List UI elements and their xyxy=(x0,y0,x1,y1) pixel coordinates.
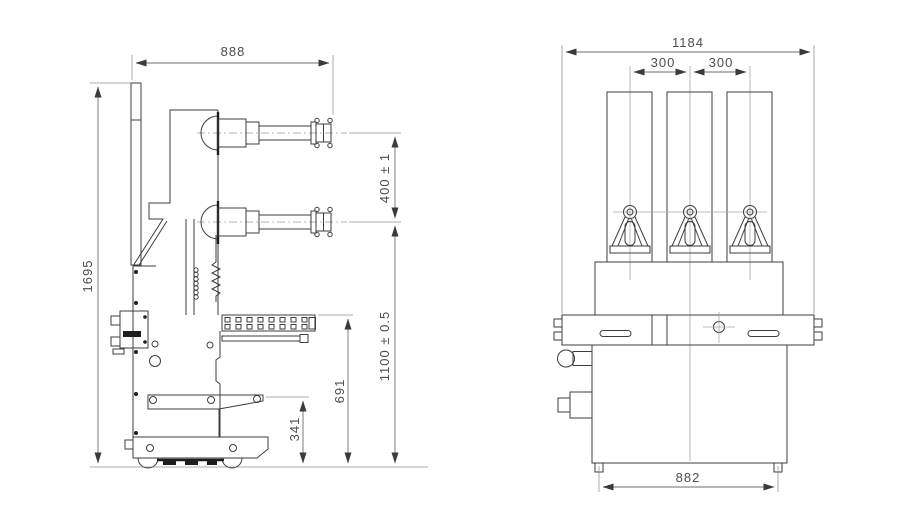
lower-guide-bar xyxy=(222,336,300,341)
wheel-left xyxy=(138,458,158,468)
cross-rail xyxy=(554,312,822,345)
cabinet xyxy=(558,345,788,472)
mechanism-knob-upper xyxy=(111,316,120,325)
pole-column-right xyxy=(727,92,772,262)
dim-label-pole-spacing-left: 300 xyxy=(651,55,676,70)
dim-overall-width-front: 1184 xyxy=(562,35,814,314)
dim-terminal-spacing: 400 ± 1 xyxy=(349,133,401,222)
lower-bushing xyxy=(197,201,347,244)
base-carriage xyxy=(125,437,268,468)
side-block xyxy=(570,392,592,418)
breaker-body xyxy=(133,110,220,437)
mechanism-knob-lower xyxy=(111,337,120,346)
hole-large xyxy=(150,356,161,367)
pole-column-middle xyxy=(667,92,712,262)
dim-bracket-height: 341 xyxy=(266,397,309,463)
mounting-bracket xyxy=(148,395,263,437)
bolt-dots xyxy=(134,270,138,435)
rail-slot-right xyxy=(748,331,779,337)
mechanism-box xyxy=(111,311,148,354)
dim-label-overall-width-side: 888 xyxy=(221,44,246,59)
dim-label-lower-terminal-height: 1100 ± 0.5 xyxy=(377,311,392,381)
engineering-drawing: 1695 888 400 ± 1 1100 ± 0.5 691 xyxy=(0,0,900,507)
dim-lower-terminal-height: 1100 ± 0.5 xyxy=(377,226,395,463)
dim-label-bracket-height: 341 xyxy=(287,417,302,442)
wheel-right xyxy=(222,458,242,468)
hole-small-right xyxy=(207,342,213,348)
dim-overall-width-side: 888 xyxy=(132,44,333,115)
pole-base-block xyxy=(595,262,783,315)
side-view: 1695 888 400 ± 1 1100 ± 0.5 691 xyxy=(80,44,428,468)
dim-overall-height: 1695 xyxy=(80,83,130,463)
closing-spring xyxy=(194,235,220,302)
dim-label-overall-width-front: 1184 xyxy=(672,35,704,50)
dim-label-rail-height: 691 xyxy=(332,379,347,404)
side-cylinder xyxy=(558,350,575,367)
dim-label-base-width: 882 xyxy=(676,470,701,485)
drawing-page: 1695 888 400 ± 1 1100 ± 0.5 691 xyxy=(0,0,900,507)
upper-bushing xyxy=(197,112,347,155)
hole-small-left xyxy=(152,341,158,347)
dim-label-overall-height: 1695 xyxy=(80,260,95,293)
contact-arm-rail xyxy=(222,315,316,343)
dim-rail-height: 691 xyxy=(318,315,353,463)
pole-column-left xyxy=(607,92,652,262)
dim-label-terminal-spacing: 400 ± 1 xyxy=(377,153,392,203)
front-view: 1184 300 300 xyxy=(554,35,822,492)
dim-base-width: 882 xyxy=(599,466,778,492)
back-panel xyxy=(131,83,141,265)
dim-label-pole-spacing-right: 300 xyxy=(709,55,734,70)
rail-slot-left xyxy=(600,331,631,337)
